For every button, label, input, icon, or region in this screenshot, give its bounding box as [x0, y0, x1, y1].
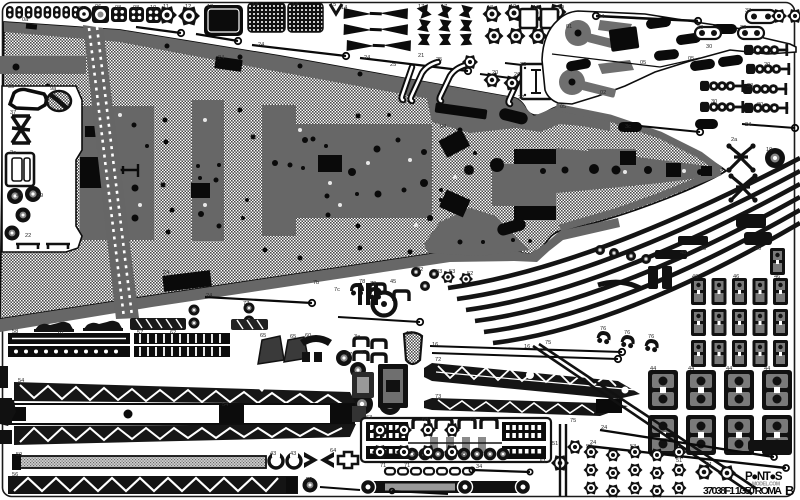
svg-text:76: 76 — [600, 326, 606, 332]
svg-text:44: 44 — [688, 366, 694, 372]
svg-text:7c: 7c — [334, 287, 340, 293]
svg-text:68: 68 — [470, 417, 476, 423]
svg-text:75: 75 — [545, 340, 551, 346]
svg-text:02: 02 — [600, 90, 606, 96]
svg-text:14: 14 — [406, 331, 412, 337]
svg-text:15: 15 — [330, 2, 336, 8]
svg-text:71: 71 — [380, 463, 386, 469]
svg-text:49: 49 — [700, 246, 706, 252]
svg-text:46: 46 — [692, 274, 698, 280]
svg-text:24: 24 — [601, 425, 607, 431]
svg-text:37038F1 1/350 ROMA: 37038F1 1/350 ROMA — [703, 485, 782, 497]
svg-text:51: 51 — [676, 458, 682, 464]
svg-text:06: 06 — [95, 4, 101, 10]
svg-text:62: 62 — [170, 330, 176, 336]
svg-text:30: 30 — [747, 83, 753, 89]
svg-text:10: 10 — [150, 5, 156, 11]
svg-text:78: 78 — [359, 279, 365, 285]
svg-text:76: 76 — [648, 334, 654, 340]
svg-text:05: 05 — [640, 60, 646, 66]
svg-text:05: 05 — [688, 56, 694, 62]
svg-text:08: 08 — [133, 5, 139, 11]
svg-text:83: 83 — [436, 269, 442, 275]
svg-text:18: 18 — [487, 5, 493, 11]
svg-text:44: 44 — [650, 366, 656, 372]
svg-text:19: 19 — [510, 4, 516, 10]
svg-text:19: 19 — [533, 5, 539, 11]
svg-text:73: 73 — [435, 394, 441, 400]
svg-text:75: 75 — [570, 418, 576, 424]
svg-text:23: 23 — [697, 25, 703, 31]
svg-text:20: 20 — [492, 70, 498, 76]
svg-text:82: 82 — [417, 267, 423, 273]
svg-text:2a: 2a — [10, 150, 17, 156]
svg-text:22: 22 — [520, 62, 526, 68]
svg-text:77: 77 — [243, 301, 249, 307]
svg-text:68: 68 — [422, 417, 428, 423]
svg-text:16: 16 — [432, 342, 438, 348]
svg-text:51: 51 — [552, 441, 558, 447]
svg-text:46: 46 — [733, 274, 739, 280]
svg-text:57: 57 — [137, 330, 143, 336]
svg-text:61: 61 — [58, 330, 64, 336]
svg-text:34: 34 — [476, 464, 482, 470]
svg-text:24: 24 — [590, 440, 596, 446]
svg-text:54: 54 — [222, 402, 228, 408]
svg-text:24: 24 — [258, 42, 264, 48]
svg-text:45: 45 — [390, 279, 396, 285]
svg-text:2a: 2a — [731, 137, 738, 143]
svg-text:45: 45 — [413, 452, 419, 458]
svg-text:20: 20 — [764, 62, 770, 68]
svg-text:01: 01 — [566, 24, 572, 30]
svg-text:19: 19 — [766, 147, 772, 153]
svg-text:12: 12 — [185, 4, 191, 10]
svg-text:22: 22 — [740, 25, 746, 31]
svg-text:65: 65 — [290, 334, 296, 340]
svg-text:43: 43 — [290, 451, 296, 457]
svg-text:53: 53 — [630, 444, 636, 450]
svg-text:24: 24 — [163, 270, 169, 276]
svg-text:40: 40 — [755, 246, 761, 252]
svg-text:24: 24 — [218, 55, 224, 61]
svg-text:46: 46 — [774, 274, 780, 280]
svg-text:26: 26 — [514, 72, 520, 78]
svg-text:51: 51 — [540, 459, 546, 465]
svg-text:05: 05 — [560, 104, 566, 110]
svg-text:50: 50 — [306, 477, 312, 483]
svg-text:16: 16 — [524, 344, 530, 350]
svg-text:25: 25 — [436, 57, 442, 63]
svg-text:56: 56 — [12, 472, 18, 478]
svg-text:0a: 0a — [22, 17, 29, 23]
svg-text:43: 43 — [270, 451, 276, 457]
svg-text:28: 28 — [16, 192, 22, 198]
svg-text:58: 58 — [12, 329, 18, 335]
svg-text:63: 63 — [366, 415, 372, 421]
svg-text:60: 60 — [305, 333, 311, 339]
svg-text:30: 30 — [706, 44, 712, 50]
svg-text:11: 11 — [163, 4, 169, 10]
svg-text:B: B — [785, 483, 794, 498]
svg-text:64: 64 — [330, 448, 336, 454]
svg-text:24: 24 — [745, 122, 751, 128]
svg-text:24: 24 — [206, 293, 212, 299]
svg-text:53: 53 — [449, 269, 455, 275]
svg-text:25: 25 — [390, 62, 396, 68]
svg-text:7b: 7b — [313, 280, 319, 286]
svg-text:14: 14 — [292, 2, 298, 8]
svg-text:04: 04 — [440, 124, 446, 130]
svg-text:30: 30 — [757, 102, 763, 108]
svg-text:14: 14 — [341, 5, 347, 11]
svg-text:22: 22 — [25, 233, 31, 239]
svg-text:17: 17 — [418, 4, 424, 10]
svg-text:24: 24 — [364, 55, 370, 61]
svg-text:44: 44 — [764, 366, 770, 372]
svg-text:34: 34 — [598, 14, 604, 20]
svg-text:65: 65 — [260, 333, 266, 339]
svg-text:48: 48 — [680, 250, 686, 256]
svg-text:29: 29 — [37, 193, 43, 199]
svg-text:37: 37 — [10, 110, 16, 116]
svg-text:08: 08 — [115, 5, 121, 11]
svg-text:19: 19 — [558, 5, 564, 11]
svg-text:59: 59 — [16, 452, 22, 458]
svg-text:13: 13 — [207, 4, 213, 10]
svg-text:47: 47 — [360, 350, 366, 356]
svg-text:14: 14 — [252, 2, 258, 8]
svg-text:21: 21 — [418, 53, 424, 59]
svg-text:51: 51 — [706, 462, 712, 468]
svg-text:3a: 3a — [354, 334, 361, 340]
svg-text:52: 52 — [467, 271, 473, 277]
svg-text:71: 71 — [404, 463, 410, 469]
svg-text:44: 44 — [726, 366, 732, 372]
svg-text:07: 07 — [78, 6, 84, 12]
svg-text:76: 76 — [624, 330, 630, 336]
svg-text:17: 17 — [441, 4, 447, 10]
svg-text:3c: 3c — [625, 124, 631, 130]
svg-text:67: 67 — [346, 352, 352, 358]
svg-text:79: 79 — [370, 281, 376, 287]
svg-text:30: 30 — [711, 99, 717, 105]
svg-text:45: 45 — [460, 452, 466, 458]
svg-text:54: 54 — [18, 378, 24, 384]
svg-text:72: 72 — [435, 357, 441, 363]
svg-text:33: 33 — [745, 8, 751, 14]
svg-text:9a: 9a — [50, 86, 57, 92]
svg-text:35: 35 — [8, 84, 14, 90]
svg-text:22: 22 — [518, 95, 524, 101]
